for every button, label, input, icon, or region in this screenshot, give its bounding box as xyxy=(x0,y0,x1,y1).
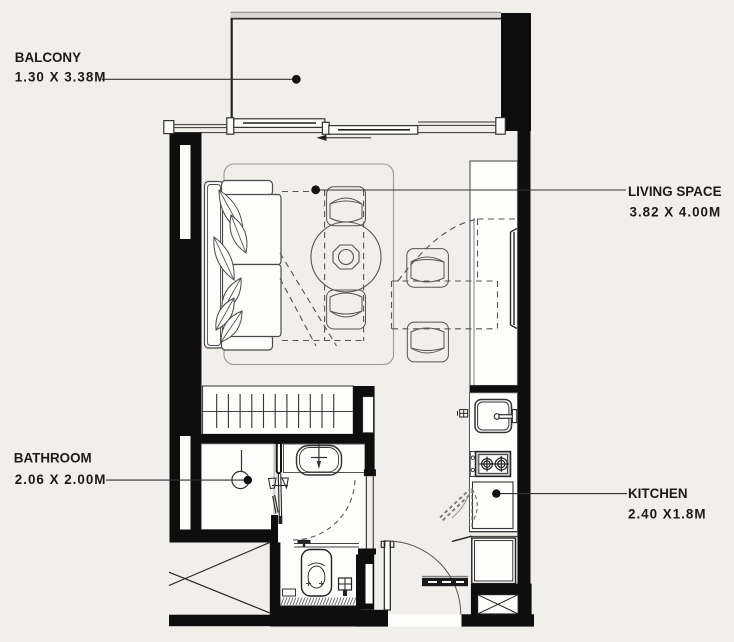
svg-text:BATHROOM: BATHROOM xyxy=(14,451,92,466)
svg-text:BALCONY: BALCONY xyxy=(15,50,81,65)
svg-text:3.82 X 4.00M: 3.82 X 4.00M xyxy=(630,205,722,220)
svg-text:LIVING SPACE: LIVING SPACE xyxy=(628,184,722,199)
svg-text:2.40 X1.8M: 2.40 X1.8M xyxy=(628,506,706,521)
svg-text:2.06 X 2.00M: 2.06 X 2.00M xyxy=(15,472,107,487)
svg-text:KITCHEN: KITCHEN xyxy=(628,486,688,501)
svg-text:1.30 X 3.38M: 1.30 X 3.38M xyxy=(15,70,107,85)
